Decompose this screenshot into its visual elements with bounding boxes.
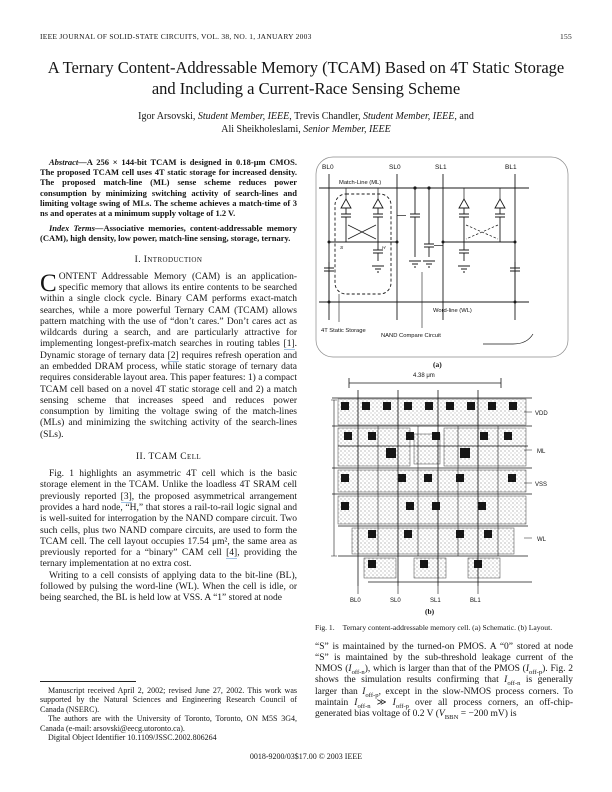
sl1-label: SL1 — [435, 164, 447, 171]
paper-title-line2: and Including a Current-Race Sensing Sch… — [30, 78, 582, 99]
section-heading-introduction: I. Introduction — [40, 255, 297, 265]
drop-cap: C — [40, 272, 59, 294]
tcam-paragraph-2: Writing to a cell consists of applying d… — [40, 571, 297, 605]
bl0-label: BL0 — [322, 164, 334, 171]
figure1-caption-text: Ternary content-addressable memory cell.… — [343, 623, 552, 632]
author-role: Student Member, IEEE — [198, 111, 289, 122]
layout-dimension-label: 4.38 μm — [413, 373, 435, 379]
vss-label: VSS — [535, 482, 547, 488]
rc-text: ≫ — [371, 698, 393, 708]
first-page-footnote: Manuscript received April 2, 2002; revis… — [40, 681, 297, 742]
sl1-bottom-label: SL1 — [430, 598, 441, 604]
copyright-footer: 0018-9200/03$17.00 © 2003 IEEE — [0, 752, 612, 761]
figure1-caption: Fig. 1.Ternary content-addressable memor… — [315, 623, 573, 633]
layout-dimension — [349, 378, 501, 388]
journal-page: IEEE JOURNAL OF SOLID-STATE CIRCUITS, VO… — [0, 0, 612, 792]
intro-text: requires refresh operation and an embedd… — [40, 351, 297, 440]
abstract: Abstract—A 256 × 144-bit TCAM is designe… — [40, 157, 297, 218]
section-heading-tcam-cell: II. TCAM Cell — [40, 452, 297, 462]
author-sep: , and — [454, 111, 473, 122]
schematic-labels: BL0 SL0 SL1 BL1 Match-Line (ML) Word-lin… — [321, 164, 517, 369]
citation-2[interactable]: [2] — [168, 351, 179, 362]
rc-text: = −200 mV) is — [458, 709, 516, 719]
citation-4[interactable]: [4] — [226, 548, 237, 559]
rc-sub: BBN — [445, 714, 459, 721]
nand-compare-label: NAND Compare Circuit — [381, 333, 441, 339]
abstract-lead: Abstract— — [49, 157, 87, 167]
author-name: Igor Arsovski, — [138, 111, 198, 122]
node-s-label: S — [340, 245, 344, 251]
intro-text: ONTENT Addressable Memory (CAM) is an ap… — [40, 272, 297, 350]
bl1-bottom-label: BL1 — [470, 598, 481, 604]
figure1-caption-lead: Fig. 1. — [315, 623, 335, 632]
footnote-rule — [40, 681, 136, 682]
vdd-label: VDD — [535, 411, 548, 417]
author-role: Senior Member, IEEE — [303, 124, 390, 135]
match-line-label: Match-Line (ML) — [339, 180, 381, 186]
figure1b-layout: 4.38 μm VDD ML VSS WL BL0 SL0 SL1 BL1 (b… — [328, 370, 568, 616]
left-column: Abstract—A 256 × 144-bit TCAM is designe… — [40, 157, 297, 605]
footnote-affiliation: The authors are with the University of T… — [40, 714, 297, 733]
sl0-bottom-label: SL0 — [390, 598, 401, 604]
author-name: , Trevis Chandler, — [289, 111, 363, 122]
running-header: IEEE JOURNAL OF SOLID-STATE CIRCUITS, VO… — [40, 32, 572, 41]
author-name: Ali Sheikholeslami, — [221, 124, 303, 135]
right-column-paragraph: “S” is maintained by the turned-on PMOS.… — [315, 642, 573, 721]
tcam-paragraph-1: Fig. 1 highlights an asymmetric 4T cell … — [40, 469, 297, 571]
index-terms: Index Terms—Associative memories, conten… — [40, 223, 297, 243]
footnote-doi: Digital Object Identifier 10.1109/JSSC.2… — [40, 733, 297, 742]
journal-title: IEEE JOURNAL OF SOLID-STATE CIRCUITS, VO… — [40, 32, 312, 41]
bl0-bottom-label: BL0 — [350, 598, 361, 604]
ml-label: ML — [537, 449, 546, 455]
copyright-text: 0018-9200/03$17.00 © 2003 IEEE — [250, 752, 362, 761]
index-terms-lead: Index Terms— — [49, 223, 103, 233]
storage-label: 4T Static Storage — [321, 328, 366, 334]
bl1-label: BL1 — [505, 164, 517, 171]
right-column: BL0 SL0 SL1 BL1 Match-Line (ML) Word-lin… — [315, 154, 573, 721]
figure1a-schematic: BL0 SL0 SL1 BL1 Match-Line (ML) Word-lin… — [315, 154, 573, 370]
citation-3[interactable]: [3] — [121, 492, 132, 503]
sl0-label: SL0 — [389, 164, 401, 171]
node-h-label: H — [382, 245, 386, 251]
subfigure-b-label: (b) — [425, 607, 435, 616]
footnote-manuscript: Manuscript received April 2, 2002; revis… — [40, 686, 297, 714]
citation-1[interactable]: [1] — [284, 339, 295, 350]
wl-label: WL — [537, 537, 547, 543]
word-line-label: Word-line (WL) — [433, 308, 472, 314]
author-line: Igor Arsovski, Student Member, IEEE, Tre… — [40, 110, 572, 136]
schematic-wires — [316, 157, 568, 357]
author-role: Student Member, IEEE — [363, 111, 454, 122]
intro-paragraph: CONTENT Addressable Memory (CAM) is an a… — [40, 272, 297, 441]
paper-title: A Ternary Content-Addressable Memory (TC… — [30, 57, 582, 99]
subfigure-a-label: (a) — [433, 360, 442, 369]
page-number: 155 — [560, 32, 572, 41]
paper-title-line1: A Ternary Content-Addressable Memory (TC… — [30, 57, 582, 78]
rc-text: ), which is larger than that of the PMOS… — [365, 664, 526, 674]
